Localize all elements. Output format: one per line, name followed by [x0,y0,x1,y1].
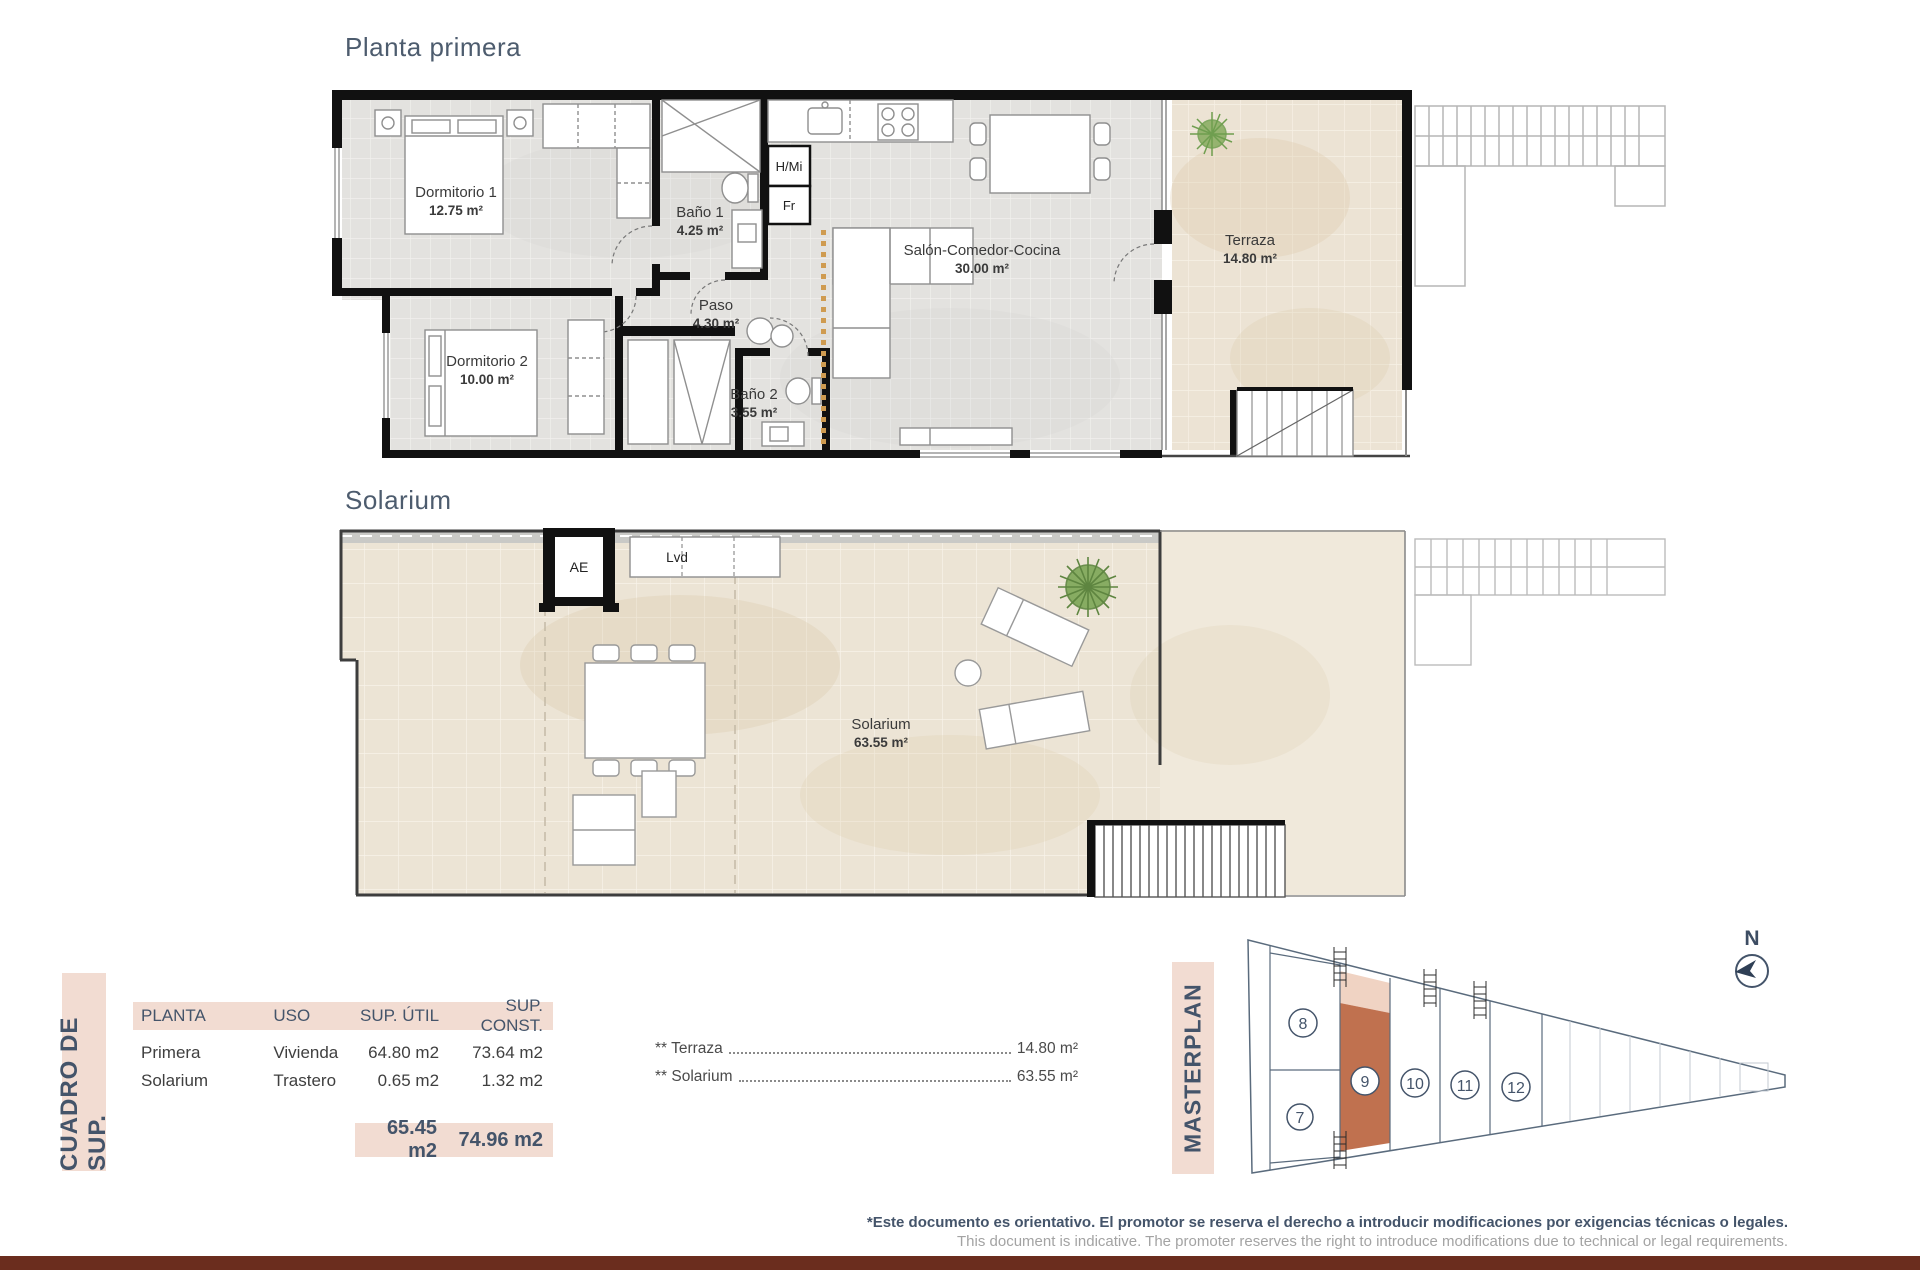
room-label-dormitorio2: Dormitorio 2 10.00 m² [446,353,528,389]
plan2-title: Solarium [345,485,452,516]
header-util: SUP. ÚTIL [357,1006,439,1026]
lvd-label: Lvd [632,537,722,577]
common-stairs-top [1415,106,1665,286]
disclaimer-es: *Este documento es orientativo. El promo… [867,1213,1788,1232]
north-arrow: N [1722,925,1786,997]
footer-bar [0,1256,1920,1270]
header-uso: USO [273,1006,356,1026]
header-planta: PLANTA [133,1006,273,1026]
plan1-title: Planta primera [345,32,521,63]
header-const: SUP. CONST. [439,996,543,1036]
room-label-paso: Paso 4.30 m² [693,297,740,333]
table-totals: 65.45 m2 74.96 m2 [355,1123,553,1157]
footer-disclaimer: *Este documento es orientativo. El promo… [867,1213,1788,1251]
total-util: 65.45 m2 [355,1117,437,1163]
room-label-solarium: Solarium 63.55 m² [851,716,910,752]
floorplan-document: { "plan1": { "title": "Planta primera", … [0,0,1920,1280]
room-label-bano1: Baño 1 4.25 m² [676,204,724,240]
unit-8: 8 [1299,1016,1308,1033]
unit-10: 10 [1406,1076,1424,1093]
north-label: N [1744,927,1759,950]
room-label-terraza: Terraza 14.80 m² [1223,232,1277,268]
tree-icon-2 [1058,557,1118,617]
masterplan-drawing: 8 7 9 10 11 12 [1240,935,1800,1185]
unit-7: 7 [1296,1110,1305,1127]
masterplan-outline [1248,940,1785,1173]
room-label-dormitorio1: Dormitorio 1 12.75 m² [415,184,497,220]
annotation-solarium: ** Solarium 63.55 m² [655,1068,1078,1086]
common-stairs-top2 [1415,539,1665,665]
dot-leader [739,1079,1011,1082]
plan2-drawing [330,515,1670,910]
masterplan-side-label: MASTERPLAN [1172,962,1214,1174]
unit-11: 11 [1457,1078,1474,1095]
solarium-stairs [1087,820,1285,897]
dot-leader [729,1051,1011,1054]
hmi-box-label: H/Mi [768,146,810,186]
table-header-row: PLANTA USO SUP. ÚTIL SUP. CONST. [133,1002,553,1030]
room-label-bano2: Baño 2 3.55 m² [730,386,778,422]
total-const: 74.96 m2 [437,1129,543,1152]
table-row: Solarium Trastero 0.65 m2 1.32 m2 [133,1068,543,1094]
room-label-salon: Salón-Comedor-Cocina 30.00 m² [904,242,1061,278]
solarium-table [585,645,705,776]
terraza-stairs [1237,387,1353,456]
cuadro-side-label: CUADRO DE SUP. [62,973,106,1171]
table-row: Primera Vivienda 64.80 m2 73.64 m2 [133,1040,543,1066]
annotation-terraza: ** Terraza 14.80 m² [655,1040,1078,1058]
ae-label: AE [555,537,603,597]
unit-9: 9 [1361,1074,1370,1091]
fr-box-label: Fr [768,186,810,224]
unit-12: 12 [1507,1080,1525,1097]
disclaimer-en: This document is indicative. The promote… [867,1232,1788,1251]
